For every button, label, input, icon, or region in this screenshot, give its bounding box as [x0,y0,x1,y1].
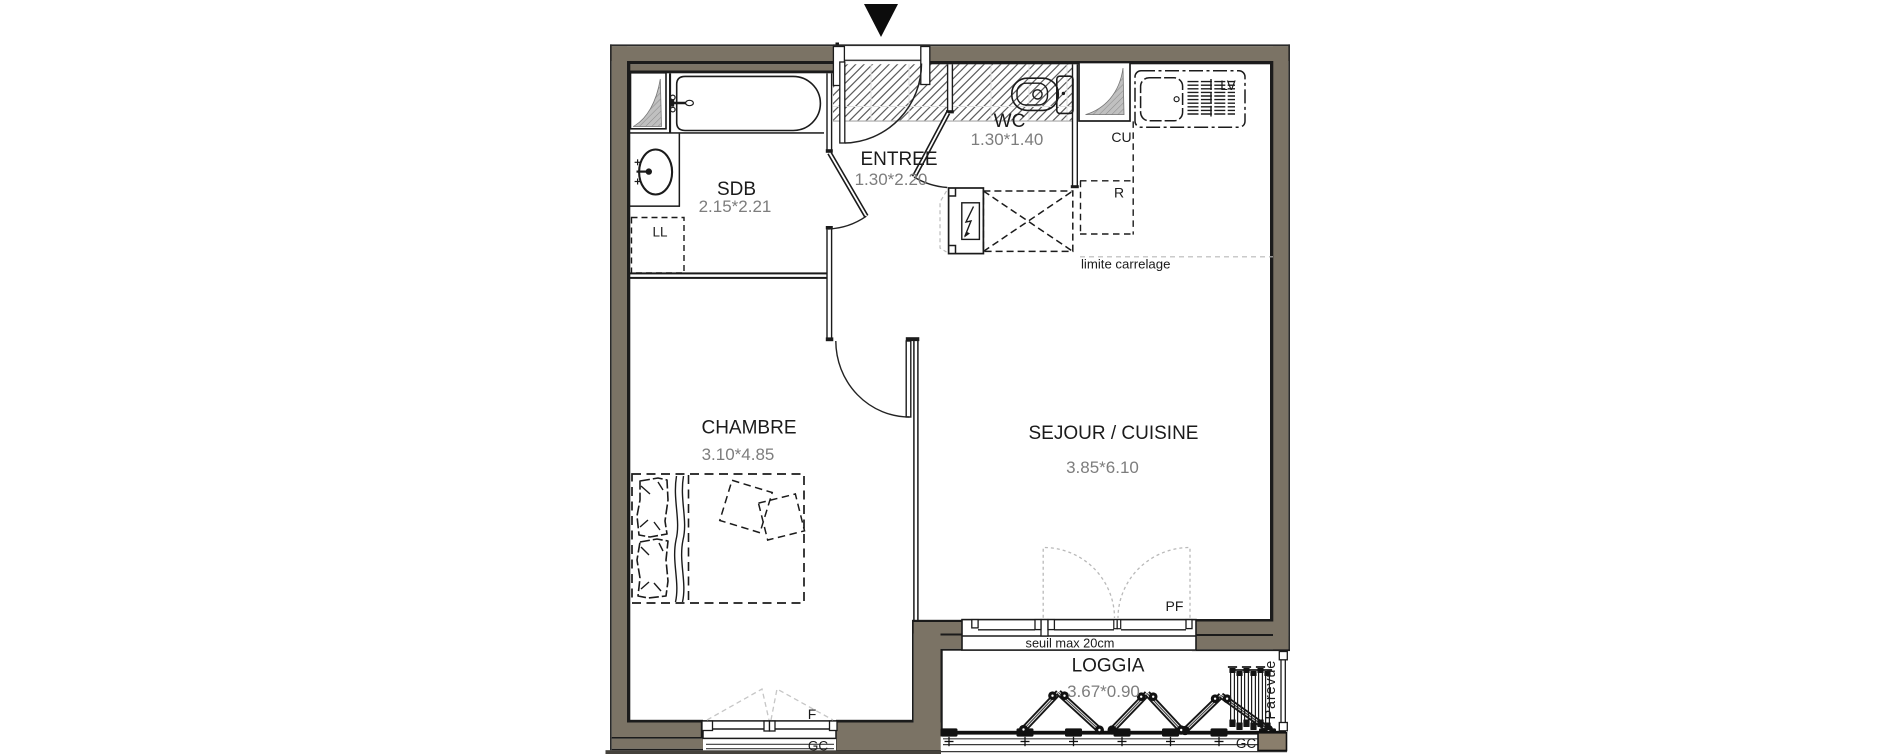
svg-text:ENTREE: ENTREE [860,149,937,170]
svg-text:1.30*2.20: 1.30*2.20 [855,170,928,189]
svg-text:3.10*4.85: 3.10*4.85 [702,445,775,464]
svg-text:CU: CU [1111,129,1131,145]
svg-text:R: R [1114,185,1124,201]
svg-text:seuil max 20cm: seuil max 20cm [1026,636,1115,651]
svg-text:PF: PF [1166,598,1184,614]
svg-text:3.67*0.90: 3.67*0.90 [1067,682,1140,701]
svg-text:WC: WC [994,111,1026,132]
svg-text:LV: LV [1220,78,1236,93]
svg-text:3.85*6.10: 3.85*6.10 [1066,458,1139,477]
svg-text:GC: GC [808,739,829,754]
svg-text:LOGGIA: LOGGIA [1072,656,1145,677]
svg-text:CHAMBRE: CHAMBRE [701,418,796,439]
svg-text:Parevue: Parevue [1263,660,1279,720]
svg-text:LL: LL [652,225,668,240]
svg-text:SEJOUR / CUISINE: SEJOUR / CUISINE [1029,423,1199,444]
svg-text:GC: GC [1236,736,1257,751]
svg-text:2.15*2.21: 2.15*2.21 [699,197,772,216]
svg-text:1.30*1.40: 1.30*1.40 [971,130,1044,149]
svg-text:limite carrelage: limite carrelage [1081,257,1170,272]
svg-text:F: F [808,706,817,722]
